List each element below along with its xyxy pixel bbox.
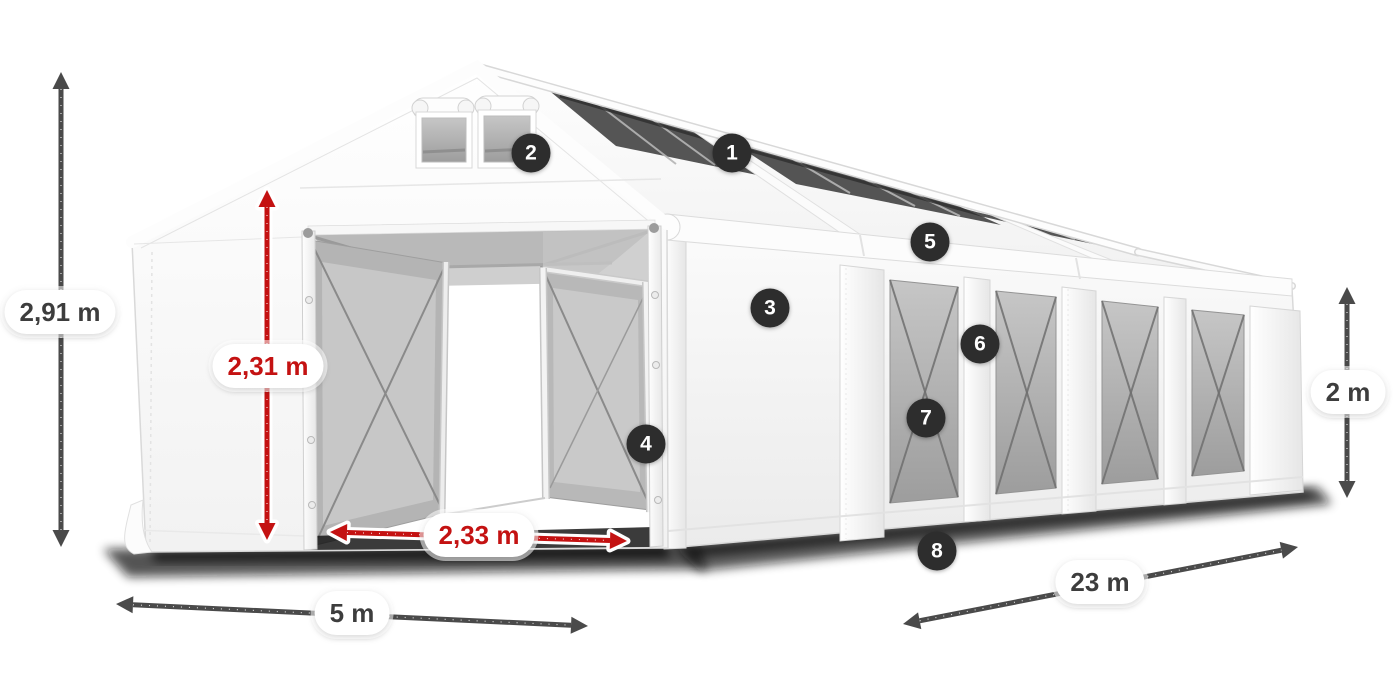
roof-join-band xyxy=(954,199,1139,271)
gable-fascia xyxy=(132,67,667,242)
gable-window-left xyxy=(412,98,474,168)
ridge-beam xyxy=(477,67,1292,286)
callout-badge-1: 1 xyxy=(713,134,752,173)
dimension-label-entrance-width: 2,33 m xyxy=(424,513,535,557)
tent-dimension-diagram: 2,91 m 2,31 m 2,33 m 5 m 23 m 2 m 1 2 3 … xyxy=(0,0,1400,700)
callout-badge-7: 7 xyxy=(907,399,946,438)
eave-beam xyxy=(654,214,1292,296)
tent-roof xyxy=(477,67,1292,286)
dimension-label-entrance-height: 2,31 m xyxy=(213,344,324,388)
dimension-label-length: 23 m xyxy=(1055,560,1144,604)
tent-illustration xyxy=(0,0,1400,700)
side-wall-posts xyxy=(664,238,1303,549)
entrance-posts xyxy=(302,220,663,550)
dimension-label-side-height: 2 m xyxy=(1311,370,1386,414)
side-windows xyxy=(890,280,1244,503)
tent-side-wall xyxy=(654,214,1303,549)
dimension-arrows xyxy=(0,0,1400,700)
callout-badge-5: 5 xyxy=(911,223,950,262)
roof-transparent-panels xyxy=(540,83,1195,265)
tent-front xyxy=(125,67,670,558)
front-entrance xyxy=(300,218,670,558)
dimension-label-gable-width: 5 m xyxy=(315,591,390,635)
entrance-left-door xyxy=(310,240,447,546)
callout-badge-4: 4 xyxy=(627,425,666,464)
dimension-label-total-height: 2,91 m xyxy=(5,290,116,334)
callout-badge-8: 8 xyxy=(918,532,957,571)
side-wall-skirt-seam xyxy=(668,477,1303,531)
roof-join-band xyxy=(677,120,876,245)
entrance-inner-door xyxy=(543,268,650,512)
corner-skirt xyxy=(125,500,152,554)
lintel-seam xyxy=(300,179,661,188)
callout-badge-3: 3 xyxy=(751,289,790,328)
ground-shadow xyxy=(103,487,1332,577)
callout-badge-2: 2 xyxy=(512,134,551,173)
callout-badge-6: 6 xyxy=(961,325,1000,364)
